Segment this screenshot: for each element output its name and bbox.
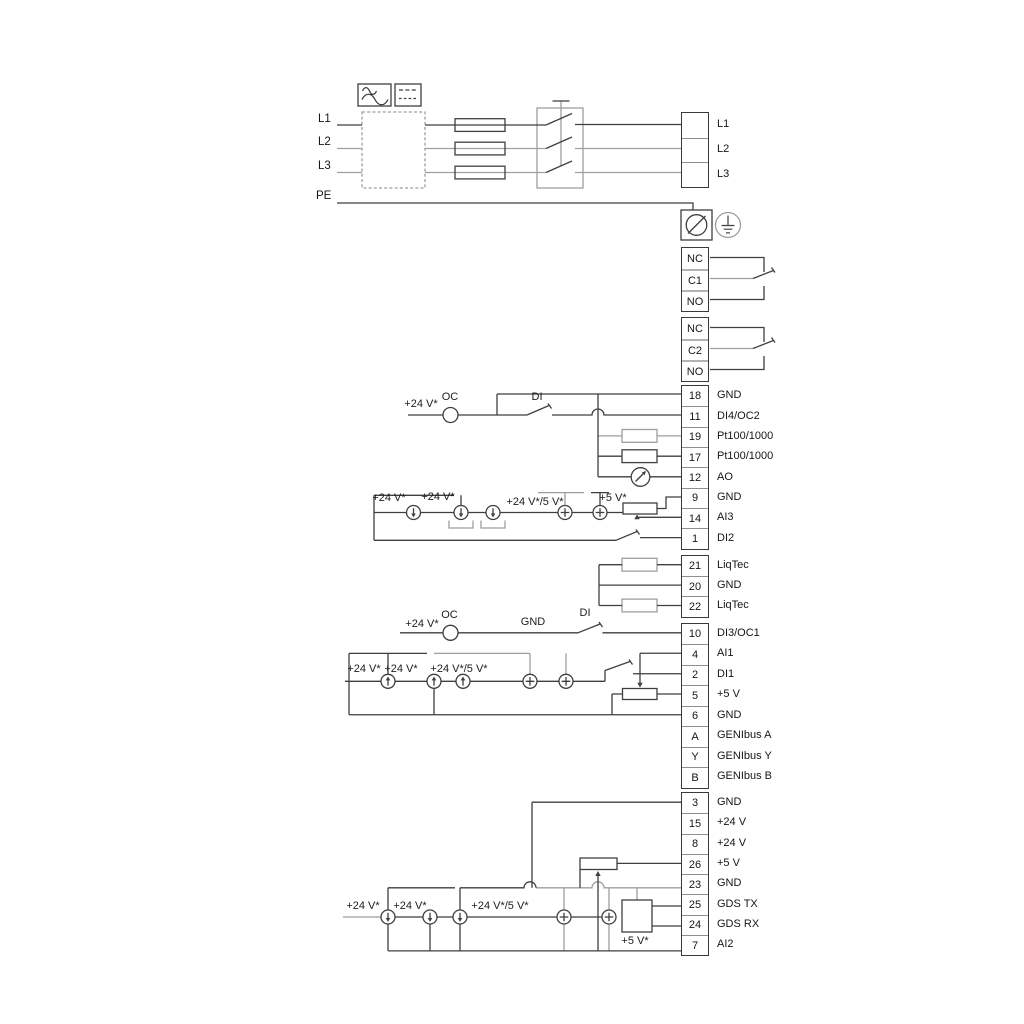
ai2-potentiometer: [580, 858, 617, 870]
terminal-column: 21 20 22: [681, 555, 709, 618]
terminal-block-power-out: L1 L2 L3: [681, 112, 729, 188]
label-plus5v: +5 V*: [599, 492, 626, 504]
terminal-label: L2: [717, 137, 729, 162]
ai3-potentiometer: [623, 503, 657, 514]
terminal-label-text: +24 V: [717, 837, 746, 849]
liqtec-resistor-22: [622, 599, 657, 612]
terminal-label-text: GND: [717, 877, 741, 889]
terminal-label-text: AI1: [717, 647, 734, 659]
terminal-label-text: AO: [717, 471, 733, 483]
label-plus24v: +24 V*: [393, 900, 426, 912]
terminal-label: GENIbus Y: [717, 746, 772, 767]
terminal-cell: 21: [682, 556, 708, 576]
terminal-number: 8: [692, 838, 698, 850]
terminal-column: 3 15 8 26 23 25 24 7: [681, 792, 709, 956]
terminal-label: GENIbus B: [717, 766, 772, 787]
terminal-label: GND: [717, 487, 773, 507]
label-oc: OC: [442, 391, 459, 403]
terminal-number: 22: [689, 601, 701, 613]
terminal-number: C2: [688, 345, 702, 357]
terminal-block-io1: 18 11 19 17 12 9 14 1 GND DI4/OC2 Pt100/…: [681, 385, 773, 550]
ai2-circuit: [388, 802, 681, 951]
terminal-label-text: DI1: [717, 668, 734, 680]
oc-circle: [443, 408, 458, 423]
terminal-block-liqtec: 21 20 22 LiqTec GND LiqTec: [681, 555, 749, 618]
terminal-label: DI1: [717, 664, 772, 685]
terminal-label-text: Pt100/1000: [717, 450, 773, 462]
label-plus24v: +24 V*: [347, 663, 380, 675]
terminal-cell: 15: [682, 813, 708, 833]
terminal-label-text: GENIbus B: [717, 770, 772, 782]
terminal-label-text: +24 V: [717, 816, 746, 828]
terminal-label-text: DI4/OC2: [717, 410, 760, 422]
label-gnd: GND: [521, 616, 545, 628]
terminal-cell: 7: [682, 935, 708, 955]
terminal-number: NO: [687, 366, 704, 378]
terminal-cell: [682, 162, 708, 187]
terminal-label: GND: [717, 705, 772, 726]
terminal-number: 21: [689, 560, 701, 572]
terminal-number: 23: [689, 879, 701, 891]
terminal-label-text: AI3: [717, 511, 734, 523]
terminal-cell: B: [682, 767, 708, 788]
terminal-label: GND: [717, 792, 759, 812]
terminal-labels: LiqTec GND LiqTec: [717, 555, 749, 616]
label-l2-in: L2: [318, 136, 331, 149]
terminal-cell: 12: [682, 467, 708, 487]
terminal-number: 20: [689, 581, 701, 593]
terminal-cell: 1: [682, 528, 708, 548]
label-di: DI: [532, 391, 543, 403]
terminal-cell: 18: [682, 386, 708, 406]
terminal-label-text: GND: [717, 709, 741, 721]
terminal-label-text: DI3/OC1: [717, 627, 760, 639]
label-plus24v: +24 V*: [405, 618, 438, 630]
terminal-label-text: AI2: [717, 938, 734, 950]
terminal-number: 3: [692, 797, 698, 809]
terminal-label: L1: [717, 112, 729, 137]
terminal-number: C1: [688, 275, 702, 287]
terminal-column: [681, 112, 709, 188]
terminal-cell: 19: [682, 427, 708, 447]
terminal-cell: A: [682, 726, 708, 747]
terminal-label-text: GENIbus Y: [717, 750, 772, 762]
wiring-diagram: L1 L2 L3 PE L1 L2 L3 NC C1 NO NC C2 NO 1…: [0, 0, 1024, 1024]
wiring-svg: [0, 0, 1024, 1024]
terminal-label: +5 V: [717, 684, 772, 705]
terminal-cell: 5: [682, 685, 708, 706]
terminal-number: 4: [692, 649, 698, 661]
dc-icon: [395, 84, 421, 106]
terminal-column: 18 11 19 17 12 9 14 1: [681, 385, 709, 550]
oc-circle: [443, 625, 458, 640]
label-l1-in: L1: [318, 113, 331, 126]
terminal-cell: C2: [682, 339, 708, 360]
ai1-potentiometer: [623, 689, 658, 700]
terminal-cell: 10: [682, 624, 708, 645]
terminal-column: 10 4 2 5 6 A Y B: [681, 623, 709, 789]
label-plus24v: +24 V*: [346, 900, 379, 912]
terminal-label: +24 V: [717, 833, 759, 853]
terminal-number: NC: [687, 323, 703, 335]
terminal-labels: DI3/OC1 AI1 DI1 +5 V GND GENIbus A GENIb…: [717, 623, 772, 787]
terminal-cell: 17: [682, 447, 708, 467]
terminal-label-text: GND: [717, 796, 741, 808]
terminal-number: 6: [692, 710, 698, 722]
label-plus24v-5v: +24 V*/5 V*: [506, 496, 563, 508]
terminal-label: +5 V: [717, 853, 759, 873]
terminal-label: AI3: [717, 507, 773, 527]
terminal-labels: GND +24 V +24 V +5 V GND GDS TX GDS RX A…: [717, 792, 759, 954]
terminal-number: 1: [692, 533, 698, 545]
label-plus5v: +5 V*: [621, 935, 648, 947]
terminal-number: 2: [692, 669, 698, 681]
terminal-number: A: [691, 731, 698, 743]
terminal-cell: NC: [682, 248, 708, 269]
pt100-resistor-19: [622, 430, 657, 443]
terminal-labels: GND DI4/OC2 Pt100/1000 Pt100/1000 AO GND…: [717, 385, 773, 548]
terminal-label: LiqTec: [717, 595, 749, 615]
terminal-label-text: L1: [717, 118, 729, 130]
terminal-number: 24: [689, 919, 701, 931]
label-oc: OC: [441, 609, 458, 621]
terminal-label: L3: [717, 161, 729, 186]
label-di: DI: [580, 607, 591, 619]
terminal-number: NO: [687, 296, 704, 308]
terminal-label-text: GDS RX: [717, 918, 759, 930]
contactor-blades: [546, 114, 572, 173]
terminal-label-text: DI2: [717, 532, 734, 544]
label-plus24v: +24 V*: [372, 492, 405, 504]
terminal-number: 14: [689, 513, 701, 525]
terminal-cell: 24: [682, 915, 708, 935]
terminal-label-text: L3: [717, 168, 729, 180]
terminal-block-io2: 10 4 2 5 6 A Y B DI3/OC1 AI1 DI1 +5 V GN…: [681, 623, 772, 789]
terminal-cell: 2: [682, 665, 708, 686]
label-plus24v-5v: +24 V*/5 V*: [471, 900, 528, 912]
terminal-cell: 26: [682, 854, 708, 874]
terminal-label: Pt100/1000: [717, 446, 773, 466]
terminal-number: 17: [689, 452, 701, 464]
terminal-cell: NC: [682, 318, 708, 339]
pt100-resistor-17: [622, 450, 657, 463]
terminal-label: GND: [717, 385, 773, 405]
terminal-cell: 6: [682, 706, 708, 727]
terminal-label: LiqTec: [717, 555, 749, 575]
terminal-label: DI2: [717, 527, 773, 547]
terminal-block-relay2: NC C2 NO: [681, 317, 709, 382]
liqtec-resistor-21: [622, 558, 657, 571]
terminal-label-text: +5 V: [717, 688, 740, 700]
terminal-number: 15: [689, 818, 701, 830]
terminal-number: Y: [691, 751, 698, 763]
terminal-cell: 22: [682, 596, 708, 616]
terminal-label: GDS RX: [717, 914, 759, 934]
terminal-label-text: Pt100/1000: [717, 430, 773, 442]
di4-circuit: [408, 394, 681, 477]
terminal-label: GENIbus A: [717, 725, 772, 746]
terminal-label-text: L2: [717, 143, 729, 155]
terminal-label-text: GDS TX: [717, 898, 758, 910]
terminal-block-relay1: NC C1 NO: [681, 247, 709, 312]
terminal-cell: 8: [682, 834, 708, 854]
terminal-label: AO: [717, 466, 773, 486]
arrowheads: [386, 471, 646, 922]
terminal-cell: 3: [682, 793, 708, 813]
terminal-block-io3: 3 15 8 26 23 25 24 7 GND +24 V +24 V +5 …: [681, 792, 759, 956]
relay-common-wires: [710, 279, 753, 349]
terminal-label-text: GND: [717, 491, 741, 503]
terminal-number: 25: [689, 899, 701, 911]
terminal-label-text: +5 V: [717, 857, 740, 869]
label-plus24v: +24 V*: [421, 491, 454, 503]
terminal-label: GND: [717, 873, 759, 893]
pe-wire: [337, 203, 693, 210]
terminal-number: 7: [692, 940, 698, 952]
terminal-number: NC: [687, 253, 703, 265]
terminal-number: 10: [689, 628, 701, 640]
label-plus24v: +24 V*: [404, 398, 437, 410]
terminal-column: NC C1 NO: [681, 247, 709, 312]
terminal-number: 19: [689, 431, 701, 443]
label-pe-in: PE: [316, 190, 331, 203]
gds-sensor-box: [622, 900, 652, 932]
terminal-cell: NO: [682, 360, 708, 381]
terminal-label-text: LiqTec: [717, 559, 749, 571]
terminal-label: AI2: [717, 934, 759, 954]
terminal-cell: 9: [682, 488, 708, 508]
terminal-column: NC C2 NO: [681, 317, 709, 382]
terminal-label-text: GND: [717, 389, 741, 401]
terminal-labels: L1 L2 L3: [717, 112, 729, 186]
emc-filter-box: [362, 112, 425, 188]
terminal-cell: 20: [682, 576, 708, 596]
l1-wire: [337, 125, 681, 126]
terminal-label: DI3/OC1: [717, 623, 772, 644]
label-plus24v: +24 V*: [384, 663, 417, 675]
terminal-number: 18: [689, 390, 701, 402]
terminal-cell: C1: [682, 269, 708, 290]
terminal-label: DI4/OC2: [717, 405, 773, 425]
terminal-label: Pt100/1000: [717, 426, 773, 446]
terminal-number: B: [691, 772, 698, 784]
terminal-number: 5: [692, 690, 698, 702]
terminal-number: 9: [692, 492, 698, 504]
terminal-label: AI1: [717, 643, 772, 664]
terminal-label: +24 V: [717, 812, 759, 832]
terminal-number: 12: [689, 472, 701, 484]
terminal-cell: [682, 113, 708, 138]
terminal-number: 11: [689, 411, 700, 423]
terminal-number: 26: [689, 859, 701, 871]
label-l3-in: L3: [318, 160, 331, 173]
terminal-cell: 23: [682, 874, 708, 894]
label-plus24v-5v: +24 V*/5 V*: [430, 663, 487, 675]
terminal-label: GDS TX: [717, 893, 759, 913]
terminal-cell: 11: [682, 406, 708, 426]
terminal-label-text: LiqTec: [717, 599, 749, 611]
terminal-cell: Y: [682, 747, 708, 768]
terminal-label: GND: [717, 575, 749, 595]
terminal-cell: NO: [682, 290, 708, 311]
terminal-cell: 25: [682, 894, 708, 914]
terminal-cell: [682, 138, 708, 163]
terminal-cell: 14: [682, 508, 708, 528]
terminal-cell: 4: [682, 644, 708, 665]
terminal-label-text: GENIbus A: [717, 729, 771, 741]
l2-l3-wires: [337, 149, 681, 173]
terminal-label-text: GND: [717, 579, 741, 591]
